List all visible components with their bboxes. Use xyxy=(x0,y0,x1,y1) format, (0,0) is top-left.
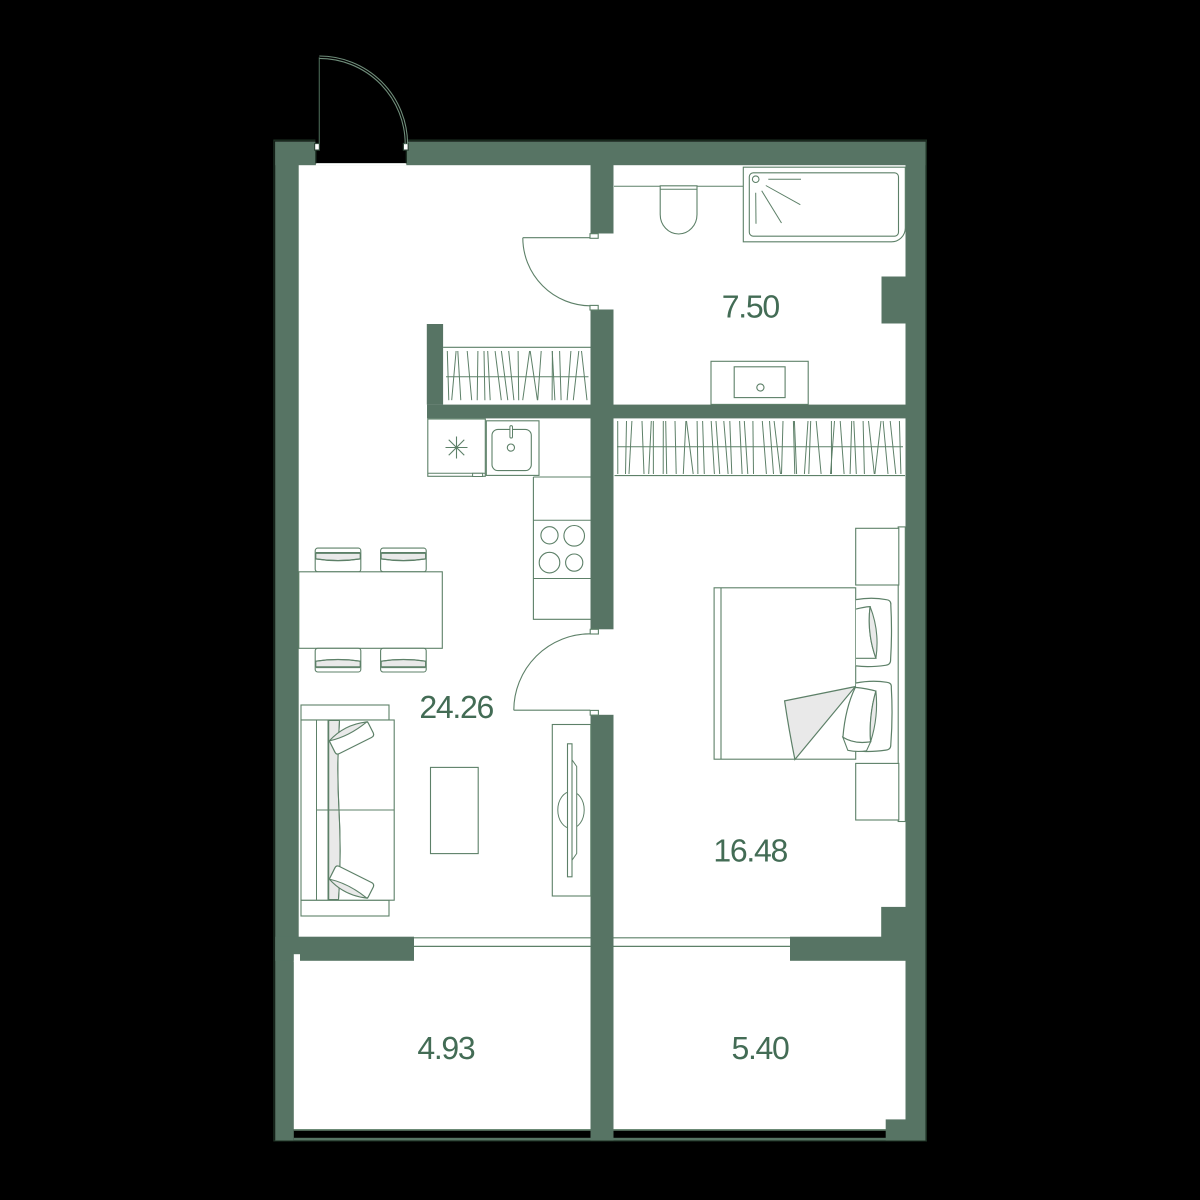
svg-text:16.48: 16.48 xyxy=(713,832,787,868)
svg-text:7.50: 7.50 xyxy=(722,288,780,324)
svg-text:24.26: 24.26 xyxy=(419,689,493,725)
svg-text:5.40: 5.40 xyxy=(731,1030,789,1066)
svg-text:4.93: 4.93 xyxy=(417,1030,475,1066)
